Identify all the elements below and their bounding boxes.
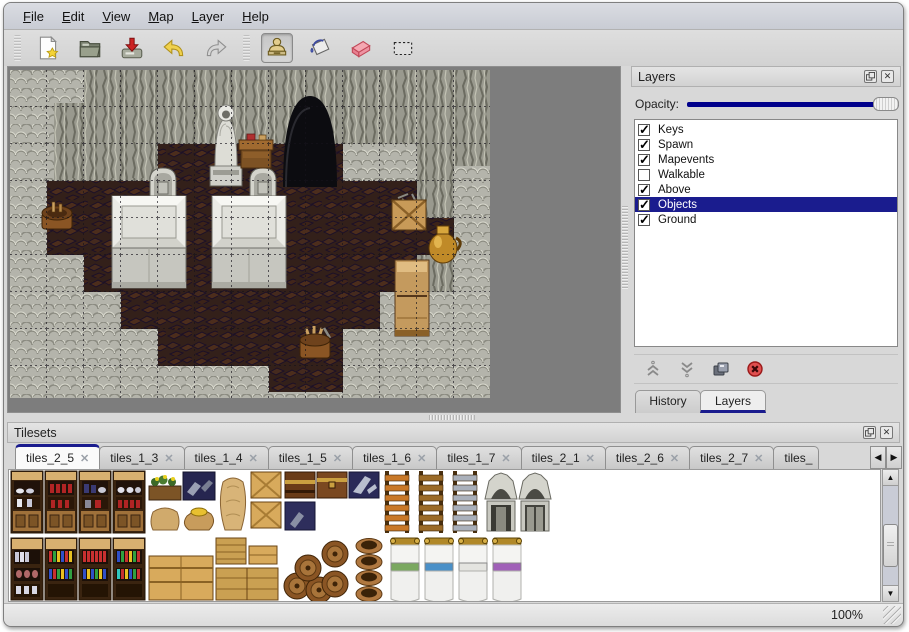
tile-chest[interactable]: [317, 472, 347, 498]
select-tool-button[interactable]: [387, 33, 419, 63]
redo-button[interactable]: [200, 33, 232, 63]
undo-arrow-icon: [161, 35, 187, 61]
tile-gold-bag[interactable]: [184, 508, 213, 530]
fill-tool-button[interactable]: [303, 33, 335, 63]
layer-row-keys[interactable]: Keys: [635, 122, 897, 137]
tile-bed[interactable]: [425, 538, 454, 602]
zoom-level: 100%: [831, 608, 863, 622]
tileset-tab[interactable]: tiles_1_3✕: [99, 446, 184, 469]
close-tab-icon[interactable]: ✕: [249, 452, 258, 465]
horizontal-splitter[interactable]: [4, 413, 903, 422]
stamp-tool-button[interactable]: [261, 33, 293, 63]
tileset-canvas[interactable]: [8, 469, 881, 602]
tile-chest[interactable]: [285, 472, 315, 498]
scroll-down-icon[interactable]: ▼: [883, 585, 898, 601]
close-tab-icon[interactable]: ✕: [501, 452, 510, 465]
opacity-track: [687, 102, 899, 107]
tile-shelf[interactable]: [11, 471, 43, 533]
tile-sack[interactable]: [220, 478, 245, 530]
tileset-tab[interactable]: tiles_1_6✕: [352, 446, 437, 469]
application-window: File Edit View Map Layer Help: [3, 2, 904, 627]
tile-sack[interactable]: [151, 508, 179, 530]
menu-view[interactable]: View: [93, 6, 139, 27]
tile-bed[interactable]: [459, 538, 488, 602]
close-tab-icon[interactable]: ✕: [670, 452, 679, 465]
layer-visibility-checkbox[interactable]: [638, 169, 650, 181]
paint-bucket-icon: [306, 35, 332, 61]
layers-panel-titlebar[interactable]: Layers ✕: [631, 66, 901, 87]
layer-name: Objects: [658, 199, 697, 211]
close-tab-icon[interactable]: ✕: [754, 452, 763, 465]
tile-pots[interactable]: [356, 539, 382, 602]
tileset-tab[interactable]: tiles_2_7✕: [689, 446, 774, 469]
move-layer-up-button[interactable]: [642, 358, 664, 380]
tile-stone-doorway[interactable]: [485, 473, 517, 531]
map-view[interactable]: [7, 66, 621, 413]
new-document-icon: [35, 35, 61, 61]
chevron-down-icon: [678, 360, 696, 378]
tile-stone-doorway[interactable]: [519, 473, 551, 531]
close-tab-icon[interactable]: ✕: [586, 452, 595, 465]
tileset-tab-bar: tiles_2_5✕ tiles_1_3✕ tiles_1_4✕ tiles_1…: [5, 444, 902, 469]
tile-planter[interactable]: [149, 475, 181, 500]
tile-crate[interactable]: [251, 472, 281, 498]
tile-dark-crate[interactable]: [285, 502, 315, 530]
close-panel-icon[interactable]: ✕: [880, 426, 893, 439]
tileset-tab[interactable]: tiles_1_5✕: [268, 446, 353, 469]
move-layer-down-button[interactable]: [676, 358, 698, 380]
duplicate-icon: [712, 360, 730, 378]
layer-row-ground[interactable]: Ground: [635, 212, 897, 227]
dock-tab-bar: History Layers: [629, 390, 765, 413]
scroll-up-icon[interactable]: ▲: [883, 470, 898, 486]
opacity-slider-handle[interactable]: [873, 97, 899, 111]
tile-ladder[interactable]: [419, 471, 443, 533]
menu-layer[interactable]: Layer: [183, 6, 234, 27]
layer-visibility-checkbox[interactable]: [638, 184, 650, 196]
tile-crate[interactable]: [216, 568, 278, 600]
tile-bed[interactable]: [493, 538, 522, 602]
close-panel-icon[interactable]: ✕: [881, 70, 894, 83]
tile-dark-crate[interactable]: [349, 472, 379, 498]
redo-arrow-icon: [203, 35, 229, 61]
layer-visibility-checkbox[interactable]: [638, 124, 650, 136]
tile-dark-crate[interactable]: [183, 472, 215, 500]
tileset-tab[interactable]: tiles_1_7✕: [436, 446, 521, 469]
layer-visibility-checkbox[interactable]: [638, 199, 650, 211]
float-panel-icon[interactable]: [864, 70, 877, 83]
layer-actions: [634, 354, 898, 384]
tile-shelf[interactable]: [45, 471, 77, 533]
float-panel-icon[interactable]: [863, 426, 876, 439]
tile-shelf[interactable]: [113, 538, 145, 600]
layer-row-mapevents[interactable]: Mapevents: [635, 152, 897, 167]
scrollbar-thumb[interactable]: [883, 524, 898, 568]
delete-layer-button[interactable]: [744, 358, 766, 380]
resize-grip[interactable]: [883, 606, 901, 624]
save-button[interactable]: [116, 33, 148, 63]
duplicate-layer-button[interactable]: [710, 358, 732, 380]
tilesets-panel-title: Tilesets: [14, 426, 57, 440]
layer-name: Walkable: [658, 169, 705, 181]
tile-crate[interactable]: [149, 556, 213, 600]
menu-map[interactable]: Map: [139, 6, 182, 27]
layers-panel: Layers ✕ Opacity: Keys Spawn: [629, 66, 903, 413]
tile-barrels[interactable]: [322, 541, 348, 597]
toolbar: [4, 30, 903, 66]
chevron-up-icon: [644, 360, 662, 378]
layer-visibility-checkbox[interactable]: [638, 214, 650, 226]
eraser-tool-button[interactable]: [345, 33, 377, 63]
eraser-icon: [348, 35, 374, 61]
tileset-tab[interactable]: tiles_: [773, 446, 819, 469]
tile-shelf[interactable]: [45, 538, 77, 600]
tileset-tiles: [9, 470, 881, 602]
layer-row-walkable[interactable]: Walkable: [635, 167, 897, 182]
scroll-tabs-left-button[interactable]: ◀: [870, 446, 886, 469]
tileset-scrollbar[interactable]: ▲ ▼: [882, 469, 899, 602]
menu-help[interactable]: Help: [233, 6, 278, 27]
map-canvas[interactable]: [10, 70, 490, 398]
opacity-label: Opacity:: [635, 97, 679, 111]
tab-history[interactable]: History: [635, 390, 701, 413]
map-grid-overlay: [10, 70, 490, 398]
tile-crate[interactable]: [249, 546, 277, 564]
tile-shelf[interactable]: [79, 538, 111, 600]
tile-crate[interactable]: [216, 538, 246, 564]
close-tab-icon[interactable]: ✕: [164, 452, 173, 465]
tilesets-panel-titlebar[interactable]: Tilesets ✕: [7, 422, 900, 443]
tile-shelf[interactable]: [113, 471, 145, 533]
layer-row-spawn[interactable]: Spawn: [635, 137, 897, 152]
menu-bar: File Edit View Map Layer Help: [4, 3, 903, 30]
scroll-tabs-right-button[interactable]: ▶: [886, 446, 902, 469]
tile-crate[interactable]: [251, 502, 281, 528]
selection-rectangle-icon: [390, 35, 416, 61]
layers-panel-title: Layers: [638, 70, 676, 84]
tile-bed[interactable]: [391, 538, 420, 602]
opacity-slider[interactable]: [687, 96, 899, 112]
layer-name: Mapevents: [658, 154, 714, 166]
layer-visibility-checkbox[interactable]: [638, 139, 650, 151]
tile-ladder[interactable]: [453, 471, 477, 533]
undo-button[interactable]: [158, 33, 190, 63]
vertical-splitter[interactable]: [621, 66, 629, 413]
layer-name: Spawn: [658, 139, 693, 151]
new-map-button[interactable]: [32, 33, 64, 63]
tile-shelf[interactable]: [11, 538, 43, 600]
delete-icon: [746, 360, 764, 378]
stamp-icon: [264, 35, 290, 61]
menu-edit[interactable]: Edit: [53, 6, 93, 27]
tab-layers[interactable]: Layers: [700, 390, 766, 413]
tileset-tab[interactable]: tiles_2_1✕: [521, 446, 606, 469]
layer-row-objects[interactable]: Objects: [635, 197, 897, 212]
layer-name: Above: [658, 184, 691, 196]
tilesets-panel: Tilesets ✕ tiles_2_5✕ tiles_1_3✕ tiles_1…: [5, 422, 902, 605]
tileset-tab[interactable]: tiles_2_6✕: [605, 446, 690, 469]
menu-file[interactable]: File: [14, 6, 53, 27]
toolbar-grip[interactable]: [243, 35, 250, 61]
close-tab-icon[interactable]: ✕: [333, 452, 342, 465]
scrollbar-track[interactable]: [883, 486, 898, 585]
save-icon: [119, 35, 145, 61]
tileset-tab[interactable]: tiles_1_4✕: [184, 446, 269, 469]
layer-name: Ground: [658, 214, 696, 226]
layer-name: Keys: [658, 124, 684, 136]
close-tab-icon[interactable]: ✕: [417, 452, 426, 465]
status-bar: 100%: [4, 603, 903, 626]
open-folder-icon: [77, 35, 103, 61]
tileset-tab[interactable]: tiles_2_5✕: [15, 444, 100, 469]
tile-ladder[interactable]: [385, 471, 409, 533]
toolbar-grip[interactable]: [14, 35, 21, 61]
layer-row-above[interactable]: Above: [635, 182, 897, 197]
tile-shelf[interactable]: [79, 471, 111, 533]
close-tab-icon[interactable]: ✕: [80, 452, 89, 465]
layer-list: Keys Spawn Mapevents Walkable Above Obje…: [634, 119, 898, 347]
layer-visibility-checkbox[interactable]: [638, 154, 650, 166]
open-button[interactable]: [74, 33, 106, 63]
